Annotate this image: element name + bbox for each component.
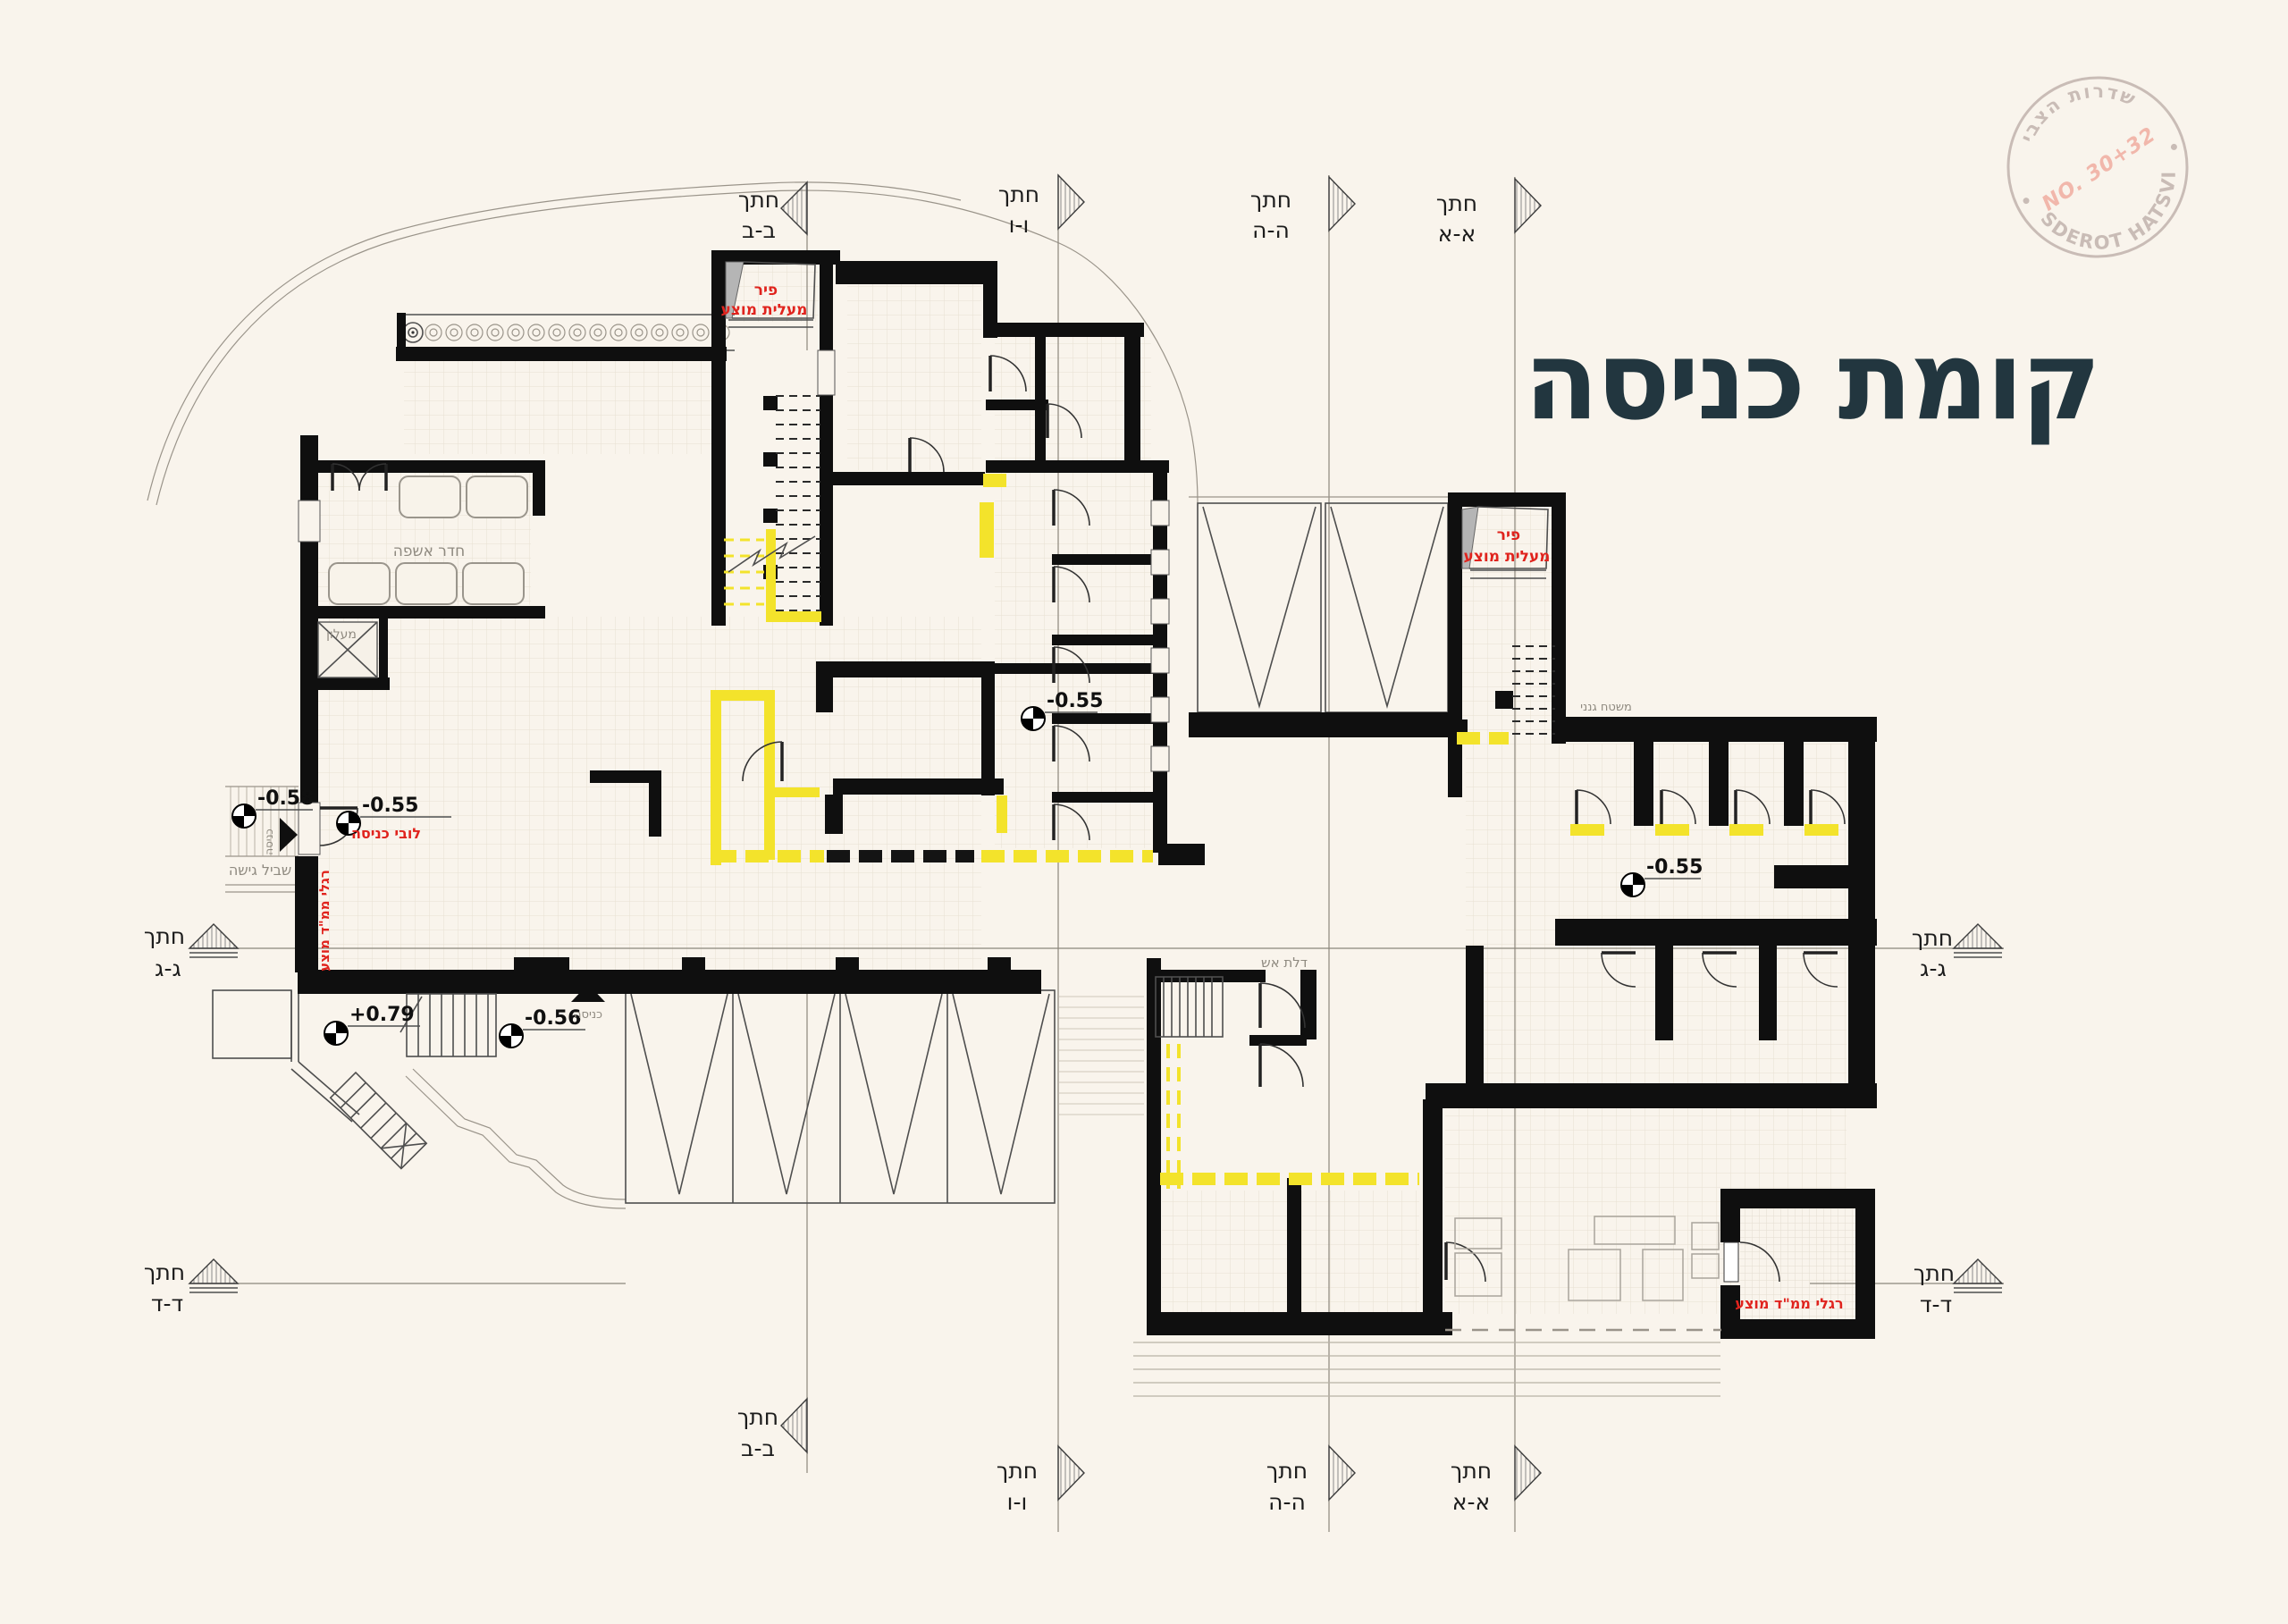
label-mamad-legs: רגלי ממ"ד מוצע <box>1735 1295 1843 1312</box>
svg-text:חתך: חתך <box>997 1458 1038 1484</box>
section-marker-bottom-hh: חתך ה-ה <box>1266 1446 1355 1515</box>
svg-text:ג-ג: ג-ג <box>1920 955 1947 981</box>
section-marker-top-hh: חתך ה-ה <box>1250 177 1355 243</box>
section-marker-bottom-aa: חתך א-א <box>1451 1446 1541 1515</box>
level-value: -0.56 <box>525 1007 581 1030</box>
svg-text:חתך: חתך <box>998 181 1039 207</box>
section-marker-left-dd: חתך ד-ד <box>144 1259 238 1317</box>
label-shaft-right-2: מעלית מוצע <box>1463 548 1550 566</box>
section-marker-top-aa: חתך א-א <box>1436 179 1541 247</box>
label-shaft-left-2: מעלית מוצע <box>720 301 807 319</box>
svg-text:ד-ד: ד-ד <box>1920 1292 1952 1317</box>
svg-text:ו-ו: ו-ו <box>1009 212 1030 238</box>
fire-stair <box>1156 977 1223 1037</box>
label-garden: משטח גנני <box>1580 701 1632 714</box>
svg-text:ד-ד: ד-ד <box>151 1291 183 1317</box>
svg-text:חתך: חתך <box>737 1404 778 1430</box>
south-entry-porch <box>213 990 359 1122</box>
section-marker-bottom-bb: חתך ב-ב <box>737 1399 807 1461</box>
label-shaft-left-1: פיר <box>754 282 778 299</box>
level-value: +0.79 <box>349 1004 415 1026</box>
diagonal-stair <box>331 1073 426 1168</box>
section-marker-top-vv: חתך ו-ו <box>998 175 1084 238</box>
label-entrance-vertical: כניסה <box>263 829 275 854</box>
svg-text:חתך: חתך <box>1914 1260 1955 1286</box>
section-marker-right-gg: חתך ג-ג <box>1912 924 2002 981</box>
sheet-title: קומת כניסה <box>1524 317 2099 444</box>
label-shaft-right-1: פיר <box>1497 526 1520 544</box>
level-value: -0.55 <box>1646 856 1703 879</box>
label-trash-room: חדר אשפה <box>393 543 466 560</box>
svg-text:חתך: חתך <box>144 1259 185 1285</box>
svg-text:חתך: חתך <box>738 187 779 213</box>
level-value: -0.55 <box>362 795 418 817</box>
south-entry-stair <box>400 994 496 1056</box>
label-mamad-legs-vertical: רגלי ממ"ד מוצע <box>316 870 332 972</box>
label-fire-door: דלת אש <box>1261 955 1308 971</box>
terrace-steps <box>1133 1342 1720 1396</box>
level-upper-entry: +0.79 <box>324 1004 420 1045</box>
railing-circles-band <box>402 315 735 350</box>
section-marker-left-gg: חתך ג-ג <box>144 923 238 981</box>
svg-text:ב-ב: ב-ב <box>741 1435 775 1461</box>
level-value: -0.55 <box>1047 690 1103 712</box>
svg-text:ו-ו: ו-ו <box>1007 1489 1028 1515</box>
ramp-skylight-panels <box>1189 497 1455 712</box>
label-lift: מעלון <box>326 627 357 642</box>
project-stamp: שדרות הצבי SDEROT HATSVI NO. 30+32 <box>1983 53 2212 282</box>
label-entrance-south: כניסה <box>574 1008 602 1022</box>
floor-plan-drawing: -0.58 -0.55 +0.79 -0.56 -0.55 -0.55 חתך … <box>0 0 2288 1624</box>
svg-text:חתך: חתך <box>1451 1458 1492 1484</box>
label-access-path: שביל גישה <box>229 862 291 879</box>
section-marker-top-bb: חתך ב-ב <box>738 182 807 243</box>
stamp-arc-bottom: SDEROT HATSVI <box>2033 162 2199 274</box>
level-value: -0.58 <box>257 787 314 810</box>
section-marker-bottom-vv: חתך ו-ו <box>997 1446 1084 1515</box>
svg-text:א-א: א-א <box>1452 1489 1490 1515</box>
svg-text:חתך: חתך <box>1912 925 1953 951</box>
svg-text:ה-ה: ה-ה <box>1252 217 1290 243</box>
svg-text:ה-ה: ה-ה <box>1268 1489 1306 1515</box>
stamp-number: NO. 30+32 <box>2038 123 2160 216</box>
svg-text:ג-ג: ג-ג <box>155 955 181 981</box>
svg-text:ב-ב: ב-ב <box>742 217 776 243</box>
garden-path-edge <box>406 1069 626 1208</box>
label-lobby: לובי כניסה <box>351 825 421 842</box>
svg-text:חתך: חתך <box>1436 190 1477 216</box>
level-south-entry: -0.56 <box>500 1007 585 1048</box>
side-path-hatch <box>1059 997 1144 1115</box>
svg-text:חתך: חתך <box>1250 187 1291 213</box>
svg-text:א-א: א-א <box>1438 221 1476 247</box>
floor-plan-sheet: -0.58 -0.55 +0.79 -0.56 -0.55 -0.55 חתך … <box>0 0 2288 1624</box>
pergola-trellis <box>626 990 1055 1203</box>
svg-text:חתך: חתך <box>1266 1458 1308 1484</box>
section-marker-right-dd: חתך ד-ד <box>1914 1259 2002 1317</box>
svg-text:חתך: חתך <box>144 923 185 949</box>
